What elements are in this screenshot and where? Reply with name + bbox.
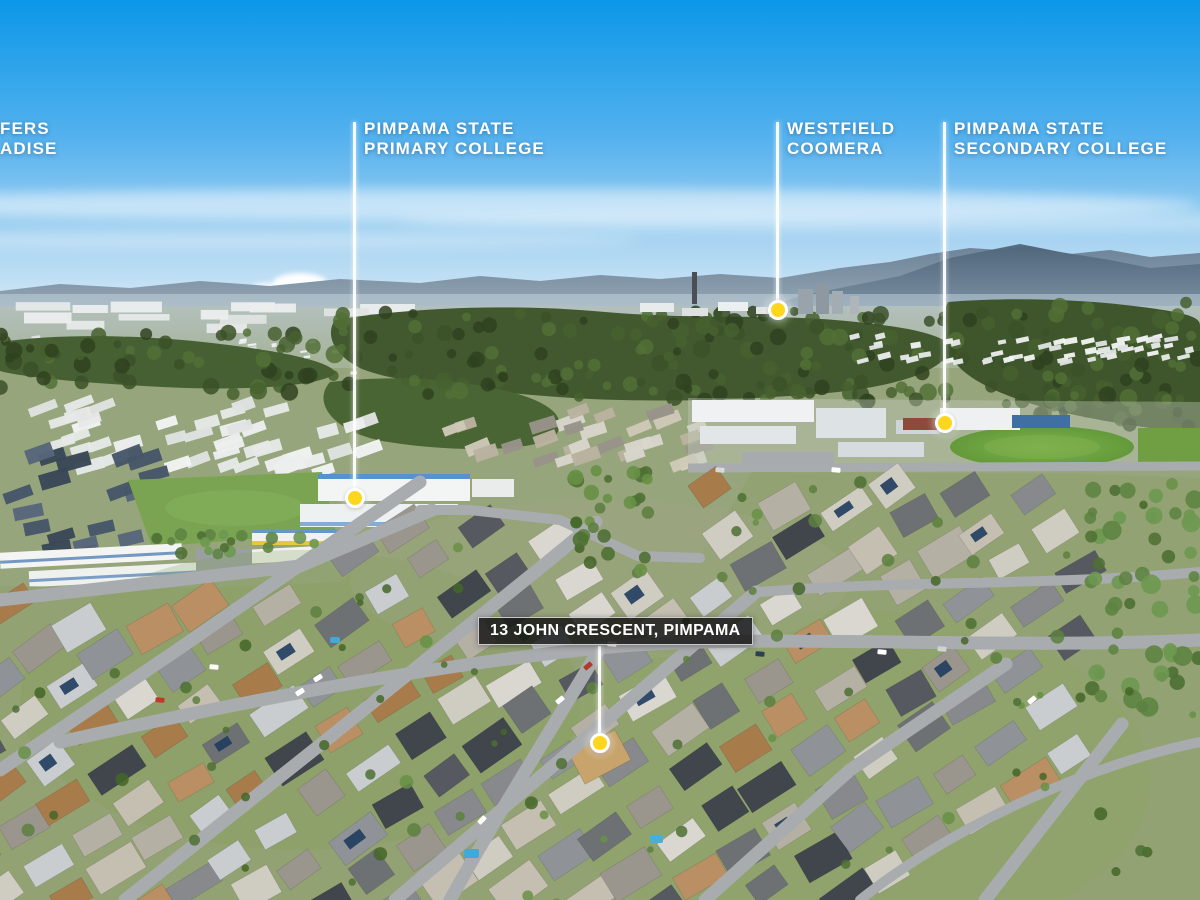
aerial-photo-canvas: FERS ADISE PIMPAMA STATE PRIMARY COLLEGE… [0, 0, 1200, 900]
callout-label: PIMPAMA STATE PRIMARY COLLEGE [364, 119, 545, 159]
callout-label: PIMPAMA STATE SECONDARY COLLEGE [954, 119, 1167, 159]
address-plaque: 13 JOHN CRESCENT, PIMPAMA [478, 617, 753, 645]
callout-label-line2: SECONDARY COLLEGE [954, 139, 1167, 159]
callout-label: FERS ADISE [0, 119, 57, 159]
callout-label-line2: PRIMARY COLLEGE [364, 139, 545, 159]
marker-dot-icon [768, 300, 788, 320]
marker-dot-icon [345, 488, 365, 508]
callout-label-line1: WESTFIELD [787, 119, 895, 139]
callout-label-line1: FERS [0, 119, 57, 139]
callout-label-line2: ADISE [0, 139, 57, 159]
callout-leader-line [943, 122, 946, 417]
callout-label: WESTFIELD COOMERA [787, 119, 895, 159]
callout-leader-line [776, 122, 779, 304]
callout-label-line1: PIMPAMA STATE [364, 119, 545, 139]
callout-label-line1: PIMPAMA STATE [954, 119, 1167, 139]
callout-leader-line [598, 646, 601, 736]
callout-leader-line [353, 122, 356, 492]
marker-dot-icon [590, 733, 610, 753]
marker-dot-icon [935, 413, 955, 433]
callout-label-line2: COOMERA [787, 139, 895, 159]
